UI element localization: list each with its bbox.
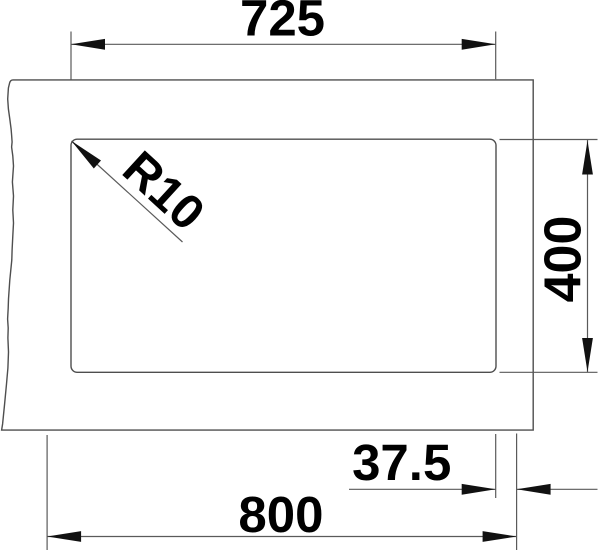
- svg-text:37.5: 37.5: [352, 434, 451, 491]
- svg-text:725: 725: [240, 0, 325, 46]
- svg-text:400: 400: [535, 216, 593, 303]
- svg-text:800: 800: [238, 486, 323, 543]
